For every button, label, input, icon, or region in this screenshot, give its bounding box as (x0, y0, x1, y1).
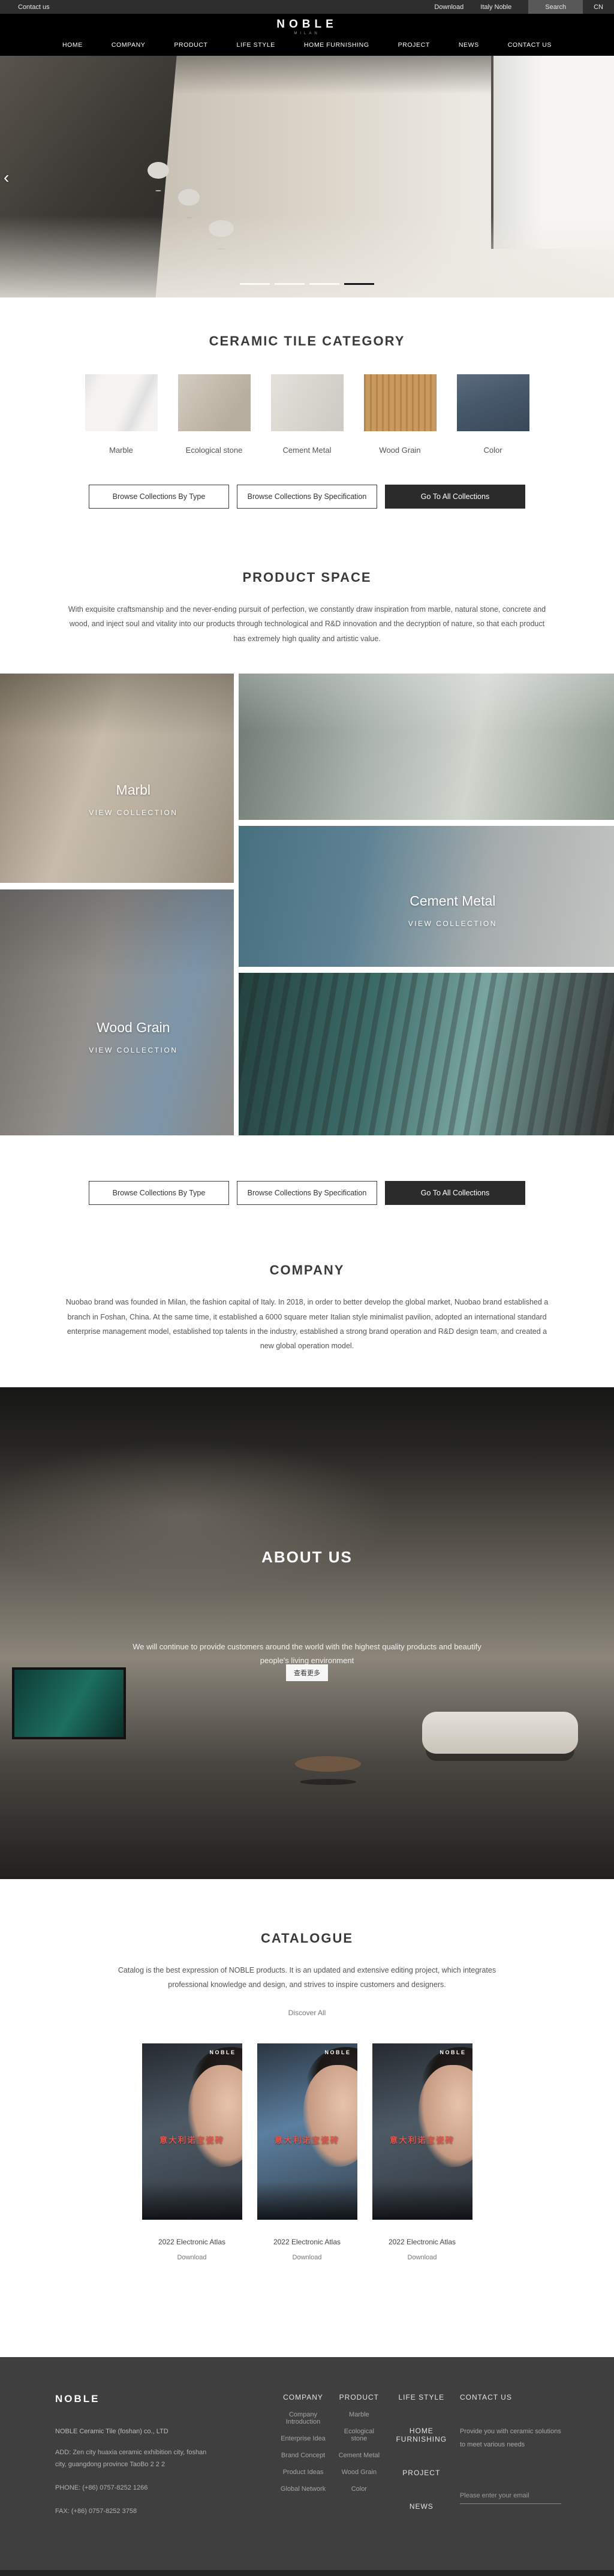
hero-image-stool (148, 162, 169, 179)
cover-model-face (188, 2065, 242, 2167)
catalogue-item-title: 2022 Electronic Atlas (142, 2238, 242, 2246)
browse-by-specification-button[interactable]: Browse Collections By Specification (237, 485, 377, 509)
footer-column-nav: LIFE STYLE HOME FURNISHING PROJECT NEWS (383, 2393, 460, 2517)
footer-bottom-strip (0, 2570, 614, 2576)
nav-company[interactable]: COMPANY (112, 41, 146, 49)
tile-label-marble: Marble (85, 446, 158, 455)
go-to-all-collections-button[interactable]: Go To All Collections (385, 485, 525, 509)
collection-overlay: Marbl VIEW COLLECTION (89, 782, 177, 817)
footer-column-product: PRODUCT Marble Ecological stone Cement M… (335, 2393, 383, 2517)
catalogue-item: NOBLE 意大利诺宝瓷砖 2022 Electronic Atlas Down… (257, 2043, 357, 2262)
footer-link-marble[interactable]: Marble (335, 2411, 383, 2418)
cover-title-text: 意大利诺宝瓷砖 (257, 2133, 357, 2145)
about-more-button[interactable]: 查看更多 (286, 1664, 328, 1681)
company-section: COMPANY Nuobao brand was founded in Mila… (0, 1205, 614, 1354)
carousel-indicator-1[interactable] (240, 283, 270, 285)
footer-link-product-ideas[interactable]: Product Ideas (271, 2469, 335, 2476)
catalogue-description: Catalog is the best expression of NOBLE … (109, 1963, 505, 1992)
company-title: COMPANY (0, 1263, 614, 1278)
footer-link-enterprise-idea[interactable]: Enterprise Idea (271, 2435, 335, 2442)
catalogue-cover[interactable]: NOBLE 意大利诺宝瓷砖 (257, 2043, 357, 2220)
masthead: NOBLE MILAN HOME COMPANY PRODUCT LIFE ST… (0, 14, 614, 56)
browse-by-specification-button[interactable]: Browse Collections By Specification (237, 1181, 377, 1205)
browse-by-type-button[interactable]: Browse Collections By Type (89, 485, 229, 509)
carousel-indicators (240, 283, 374, 285)
about-us-title: ABOUT US (261, 1548, 353, 1567)
cover-model-face (419, 2065, 472, 2167)
nav-home[interactable]: HOME (62, 41, 83, 49)
browse-by-type-button[interactable]: Browse Collections By Type (89, 1181, 229, 1205)
main-nav: HOME COMPANY PRODUCT LIFE STYLE HOME FUR… (0, 35, 614, 56)
company-description: Nuobao brand was founded in Milan, the f… (61, 1295, 553, 1354)
cover-brand-logo: NOBLE (440, 2049, 466, 2055)
footer-link-life-style[interactable]: LIFE STYLE (383, 2393, 460, 2401)
nav-project[interactable]: PROJECT (398, 41, 430, 49)
newsletter-email-input[interactable] (460, 2488, 561, 2504)
cover-title-text: 意大利诺宝瓷砖 (372, 2133, 472, 2145)
collection-name: Cement Metal (408, 893, 497, 909)
product-space-section: PRODUCT SPACE With exquisite craftsmansh… (0, 509, 614, 1205)
category-buttons-row: Browse Collections By Type Browse Collec… (0, 485, 614, 509)
about-image-tv (12, 1667, 126, 1739)
collection-overlay: Wood Grain VIEW COLLECTION (89, 1020, 177, 1054)
catalogue-item-title: 2022 Electronic Atlas (257, 2238, 357, 2246)
hero-image-stool (178, 189, 200, 206)
tile-swatch-marble[interactable] (85, 374, 158, 431)
about-us-description: We will continue to provide customers ar… (127, 1640, 487, 1668)
top-utility-bar: Contact us Download Italy Noble Search C… (0, 0, 614, 14)
cover-title-text: 意大利诺宝瓷砖 (142, 2133, 242, 2145)
footer-contact-heading[interactable]: CONTACT US (460, 2393, 561, 2401)
view-collection-link[interactable]: VIEW COLLECTION (408, 919, 497, 928)
cover-bottom-band (372, 2181, 472, 2220)
collections-grid-right-column: Cement Metal VIEW COLLECTION (239, 674, 614, 1135)
download-link[interactable]: Download (434, 4, 463, 11)
footer-column-contact: CONTACT US Provide you with ceramic solu… (460, 2393, 561, 2517)
footer-link-news[interactable]: NEWS (383, 2502, 460, 2511)
topbar-right: Download Italy Noble Search CN (434, 0, 614, 14)
product-space-title: PRODUCT SPACE (0, 570, 614, 585)
search-button[interactable]: Search (528, 0, 583, 14)
collection-card-wood-grain[interactable]: Wood Grain VIEW COLLECTION (0, 889, 234, 1135)
cover-brand-logo: NOBLE (210, 2049, 236, 2055)
carousel-indicator-2[interactable] (275, 283, 305, 285)
tile-label-cement-metal: Cement Metal (271, 446, 344, 455)
catalogue-download-link[interactable]: Download (177, 2254, 207, 2261)
catalogue-section: CATALOGUE Catalog is the best expression… (0, 1879, 614, 2263)
footer-link-home-furnishing[interactable]: HOME FURNISHING (383, 2427, 460, 2443)
footer-contact-text: Provide you with ceramic solutions to me… (460, 2425, 561, 2451)
collection-card-lounge[interactable] (239, 973, 614, 1135)
italy-noble-link[interactable]: Italy Noble (480, 4, 511, 11)
view-collection-link[interactable]: VIEW COLLECTION (89, 808, 177, 817)
footer-address: ADD: Zen city huaxia ceramic exhibition … (55, 2447, 211, 2470)
catalogue-title: CATALOGUE (0, 1931, 614, 1946)
hero-carousel: ‹ (0, 56, 614, 297)
search-label: Search (545, 4, 566, 11)
discover-all-link[interactable]: Discover All (288, 2009, 326, 2017)
hero-image-floor (0, 215, 614, 297)
footer-link-company-introduction[interactable]: Company Introduction (271, 2411, 335, 2425)
product-space-description: With exquisite craftsmanship and the nev… (67, 602, 547, 646)
tile-swatch-color[interactable] (457, 374, 529, 431)
collections-buttons-row: Browse Collections By Type Browse Collec… (0, 1181, 614, 1205)
catalogue-item: NOBLE 意大利诺宝瓷砖 2022 Electronic Atlas Down… (142, 2043, 242, 2262)
footer-link-brand-concept[interactable]: Brand Concept (271, 2452, 335, 2459)
footer-link-global-network[interactable]: Global Network (271, 2485, 335, 2493)
footer-fax: FAX: (+86) 0757-8252 3758 (55, 2506, 211, 2517)
tile-label-wood-grain: Wood Grain (364, 446, 437, 455)
footer-phone: PHONE: (+86) 0757-8252 1266 (55, 2482, 211, 2494)
carousel-indicator-3[interactable] (309, 283, 339, 285)
collections-grid-left-column: Marbl VIEW COLLECTION Wood Grain VIEW CO… (0, 674, 234, 1135)
collection-name: Marbl (89, 782, 177, 798)
tile-swatch-cement-metal[interactable] (271, 374, 344, 431)
tile-swatch-wood-grain[interactable] (364, 374, 437, 431)
nav-news[interactable]: NEWS (459, 41, 479, 49)
tile-swatches (0, 374, 614, 431)
tile-swatch-ecological-stone[interactable] (178, 374, 251, 431)
footer-columns: COMPANY Company Introduction Enterprise … (247, 2393, 561, 2517)
cover-bottom-band (142, 2181, 242, 2220)
nav-life-style[interactable]: LIFE STYLE (237, 41, 275, 49)
nav-home-furnishing[interactable]: HOME FURNISHING (304, 41, 369, 49)
catalogue-covers-row: NOBLE 意大利诺宝瓷砖 2022 Electronic Atlas Down… (0, 2043, 614, 2262)
catalogue-item-title: 2022 Electronic Atlas (372, 2238, 472, 2246)
carousel-indicator-4-active[interactable] (344, 283, 374, 285)
about-image-sofa (422, 1712, 578, 1754)
collection-card-exterior[interactable] (239, 674, 614, 820)
tile-label-color: Color (457, 446, 529, 455)
language-switch-cn[interactable]: CN (583, 4, 614, 11)
cover-bottom-band (257, 2181, 357, 2220)
footer-link-project[interactable]: PROJECT (383, 2469, 460, 2477)
collection-overlay: Cement Metal VIEW COLLECTION (408, 893, 497, 928)
contact-us-link[interactable]: Contact us (18, 4, 50, 11)
ceramic-tile-category-section: CERAMIC TILE CATEGORY Marble Ecological … (0, 297, 614, 509)
cover-model-face (303, 2065, 357, 2167)
footer-company-name: NOBLE Ceramic Tile (foshan) co., LTD (55, 2428, 247, 2435)
catalogue-cover[interactable]: NOBLE 意大利诺宝瓷砖 (372, 2043, 472, 2220)
footer-link-color[interactable]: Color (335, 2485, 383, 2493)
carousel-prev-arrow-icon[interactable]: ‹ (4, 169, 9, 186)
collection-card-cement-metal[interactable]: Cement Metal VIEW COLLECTION (239, 826, 614, 967)
view-collection-link[interactable]: VIEW COLLECTION (89, 1046, 177, 1054)
category-section-title: CERAMIC TILE CATEGORY (0, 333, 614, 349)
tile-label-ecological-stone: Ecological stone (178, 446, 251, 455)
about-us-banner: ABOUT US We will continue to provide cus… (0, 1387, 614, 1879)
footer-company-heading[interactable]: COMPANY (271, 2393, 335, 2401)
footer-link-wood-grain[interactable]: Wood Grain (335, 2469, 383, 2476)
footer-column-company: COMPANY Company Introduction Enterprise … (271, 2393, 335, 2517)
footer-brand-block: NOBLE NOBLE Ceramic Tile (foshan) co., L… (55, 2393, 247, 2517)
nav-product[interactable]: PRODUCT (174, 41, 207, 49)
catalogue-download-link[interactable]: Download (293, 2254, 322, 2261)
footer-link-ecological-stone[interactable]: Ecological stone (335, 2428, 383, 2442)
footer-product-heading[interactable]: PRODUCT (335, 2393, 383, 2401)
collection-name: Wood Grain (89, 1020, 177, 1036)
about-image-table (295, 1756, 361, 1772)
collection-card-marble[interactable]: Marbl VIEW COLLECTION (0, 674, 234, 883)
tile-labels: Marble Ecological stone Cement Metal Woo… (0, 446, 614, 455)
cover-brand-logo: NOBLE (325, 2049, 351, 2055)
footer-noble-logo: NOBLE (55, 2393, 247, 2405)
catalogue-item: NOBLE 意大利诺宝瓷砖 2022 Electronic Atlas Down… (372, 2043, 472, 2262)
noble-logo[interactable]: NOBLE (0, 18, 614, 31)
catalogue-download-link[interactable]: Download (408, 2254, 437, 2261)
footer-link-cement-metal[interactable]: Cement Metal (335, 2452, 383, 2459)
nav-contact-us[interactable]: CONTACT US (508, 41, 552, 49)
collections-grid: Marbl VIEW COLLECTION Wood Grain VIEW CO… (0, 674, 614, 1135)
catalogue-cover[interactable]: NOBLE 意大利诺宝瓷砖 (142, 2043, 242, 2220)
footer: NOBLE NOBLE Ceramic Tile (foshan) co., L… (0, 2357, 614, 2570)
go-to-all-collections-button[interactable]: Go To All Collections (385, 1181, 525, 1205)
